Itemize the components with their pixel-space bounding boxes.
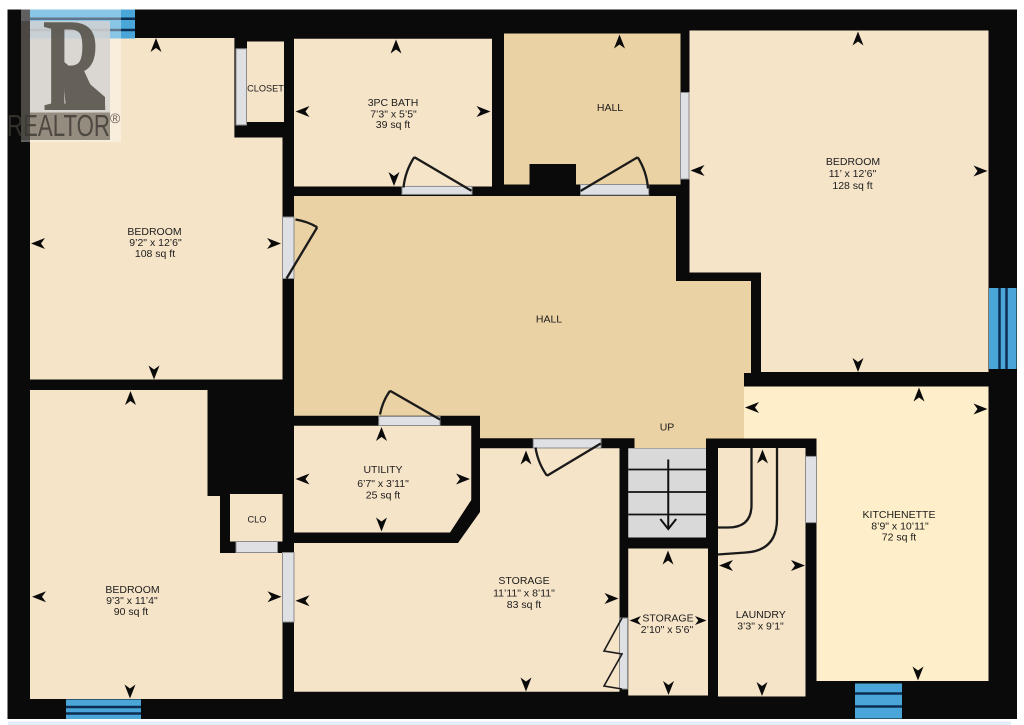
svg-text:9’3" x 11’4": 9’3" x 11’4" <box>106 595 158 607</box>
svg-text:BEDROOM: BEDROOM <box>105 584 159 596</box>
svg-text:108 sq ft: 108 sq ft <box>135 248 175 260</box>
svg-text:90 sq ft: 90 sq ft <box>114 606 149 618</box>
svg-text:3’3" x 9’1": 3’3" x 9’1" <box>737 621 784 633</box>
svg-text:72 sq ft: 72 sq ft <box>882 532 917 544</box>
svg-text:REALTOR: REALTOR <box>7 109 110 143</box>
svg-text:HALL: HALL <box>536 314 562 326</box>
svg-text:CLO: CLO <box>248 515 267 525</box>
svg-text:STORAGE: STORAGE <box>498 575 549 587</box>
svg-text:3PC BATH: 3PC BATH <box>368 97 419 109</box>
svg-text:11’11" x 8’11": 11’11" x 8’11" <box>493 588 555 600</box>
svg-text:11’ x 12’6": 11’ x 12’6" <box>829 168 877 180</box>
svg-text:BEDROOM: BEDROOM <box>826 156 880 168</box>
svg-text:KITCHENETTE: KITCHENETTE <box>863 509 936 521</box>
svg-text:HALL: HALL <box>597 102 623 114</box>
svg-text:128 sq ft: 128 sq ft <box>832 180 872 192</box>
svg-text:UTILITY: UTILITY <box>363 464 402 476</box>
svg-text:2’10" x 5’6": 2’10" x 5’6" <box>641 624 694 636</box>
svg-text:BEDROOM: BEDROOM <box>127 226 181 238</box>
svg-text:39 sq ft: 39 sq ft <box>376 119 411 131</box>
svg-text:25 sq ft: 25 sq ft <box>366 489 401 501</box>
svg-text:STORAGE: STORAGE <box>642 613 693 625</box>
svg-text:UP: UP <box>660 422 675 434</box>
svg-text:LAUNDRY: LAUNDRY <box>736 609 786 621</box>
svg-text:83 sq ft: 83 sq ft <box>507 599 542 611</box>
svg-text:8’9" x 10’11": 8’9" x 10’11" <box>871 520 929 532</box>
svg-text:CLOSET: CLOSET <box>247 84 284 94</box>
svg-text:®: ® <box>110 110 121 126</box>
svg-text:6’7" x 3’11": 6’7" x 3’11" <box>357 478 409 490</box>
